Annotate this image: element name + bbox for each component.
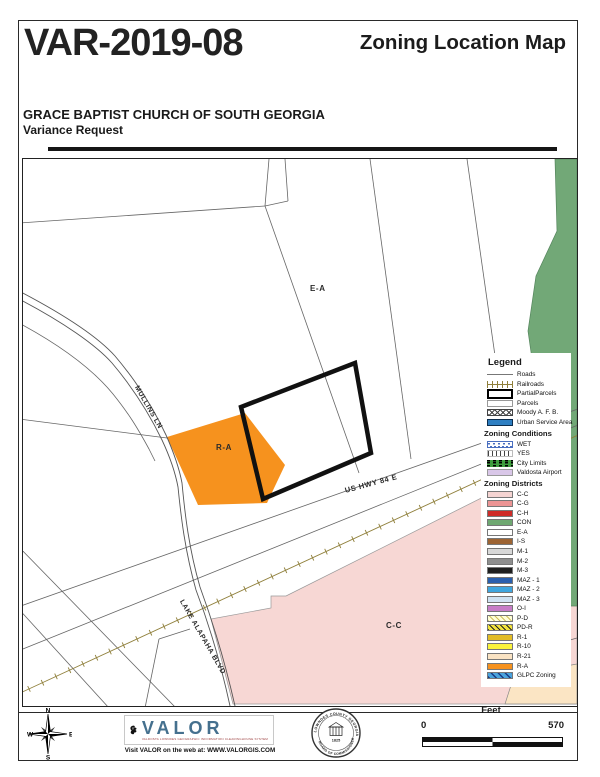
compass-east-label: E [69, 732, 72, 739]
case-number: VAR-2019-08 [24, 22, 243, 65]
legend-item: WET [481, 439, 571, 449]
legend-item: MAZ - 1 [481, 575, 571, 585]
legend-item: YES [481, 449, 571, 459]
legend-symbol-p-d [487, 615, 513, 622]
legend-item: I-S [481, 537, 571, 547]
map-label-e-a: E-A [310, 284, 326, 293]
legend-symbol-e-a [487, 529, 513, 536]
legend-symbol-maz-3 [487, 596, 513, 603]
valor-tagline: VALDOSTA LOWNDES GEOGRAPHIC INFORMATION … [142, 737, 268, 741]
map-label-c-c: C-C [386, 621, 402, 630]
legend-item: E-A [481, 528, 571, 538]
legend-item-label: MAZ - 2 [517, 586, 540, 593]
legend-symbol-railroads [487, 381, 513, 388]
legend-sections: RoadsRailroadsPartialParcelsParcelsMoody… [481, 370, 571, 680]
legend-item-label: City Limits [517, 460, 546, 467]
legend-item-label: P-D [517, 615, 528, 622]
legend-symbol-r-1 [487, 634, 513, 641]
valor-logo: VALOR VALDOSTA LOWNDES GEOGRAPHIC INFORM… [124, 715, 274, 745]
legend-item: GLPC Zoning [481, 671, 571, 681]
legend-item: MAZ - 3 [481, 594, 571, 604]
legend-item: M-2 [481, 556, 571, 566]
legend-item-label: MAZ - 1 [517, 577, 540, 584]
legend-item-label: Parcels [517, 400, 538, 407]
legend-item: O-I [481, 604, 571, 614]
legend-symbol-r-10 [487, 643, 513, 650]
page-title: Zoning Location Map [300, 31, 566, 55]
request-type: Variance Request [23, 123, 123, 137]
legend-item: City Limits [481, 458, 571, 468]
legend-symbol-c-g [487, 500, 513, 507]
legend-symbol-roads [487, 374, 513, 375]
legend-symbol-maz-1 [487, 577, 513, 584]
legend-item: R-A [481, 661, 571, 671]
map-label-r-a: R-A [216, 443, 232, 452]
scale-unit-label: Feet [430, 705, 552, 716]
legend-symbol-wet [487, 441, 513, 448]
legend-item: CON [481, 518, 571, 528]
valor-glyph-icon [130, 718, 138, 742]
legend-item-label: Moody A. F. B. [517, 409, 558, 416]
scale-bar [422, 737, 563, 747]
legend-symbol-partialparcels [487, 389, 513, 399]
legend-item-label: M-2 [517, 558, 528, 565]
zoning-map: E-AR-AC-CR-21US HWY 84 EMULLINS LNLAKE A… [22, 158, 578, 707]
legend-item: C-G [481, 499, 571, 509]
legend-symbol-c-c [487, 491, 513, 498]
legend-item: MAZ - 2 [481, 585, 571, 595]
compass-north-label: N [46, 708, 51, 715]
legend-item-label: Urban Service Area [517, 419, 572, 426]
legend-item-label: PD-R [517, 624, 533, 631]
legend-item: Urban Service Area [481, 418, 571, 428]
valor-text-block: VALOR VALDOSTA LOWNDES GEOGRAPHIC INFORM… [142, 720, 268, 741]
header-rule [48, 147, 557, 151]
legend-item-label: E-A [517, 529, 528, 536]
applicant-name: GRACE BAPTIST CHURCH OF SOUTH GEORGIA [23, 107, 325, 122]
legend-item: R-21 [481, 652, 571, 662]
county-seal-icon: LOWNDES COUNTY GEORGIA BOARD OF COMMISSI… [310, 707, 362, 759]
scale-start-value: 0 [421, 720, 426, 731]
compass-south-label: S [46, 755, 51, 762]
legend-symbol-c-h [487, 510, 513, 517]
legend-symbol-m-3 [487, 567, 513, 574]
legend-item: PD-R [481, 623, 571, 633]
legend-item: Parcels [481, 399, 571, 409]
legend-symbol-maz-2 [487, 586, 513, 593]
compass-rose: N S E W [26, 707, 72, 761]
legend-item-label: M-3 [517, 567, 528, 574]
legend-symbol-yes [487, 450, 513, 457]
legend-section-heading: Zoning Conditions [481, 427, 571, 439]
scale-end-value: 570 [540, 720, 564, 731]
legend-symbol-glpc-zoning [487, 672, 513, 679]
legend-item-label: WET [517, 441, 531, 448]
legend-item-label: PartialParcels [517, 390, 556, 397]
legend-symbol-r-a [487, 663, 513, 670]
legend-symbol-city-limits [487, 460, 513, 467]
legend-item: P-D [481, 614, 571, 624]
legend-symbol-o-i [487, 605, 513, 612]
legend-item: Railroads [481, 380, 571, 390]
legend-item-label: R-21 [517, 653, 531, 660]
legend-item-label: Roads [517, 371, 535, 378]
legend-symbol-valdosta-airport [487, 469, 513, 476]
legend-symbol-parcels [487, 400, 513, 407]
map-label-lake-alapaha-blvd: LAKE ALAPAHA BLVD [178, 599, 226, 676]
legend-item: R-1 [481, 633, 571, 643]
legend-item-label: C-C [517, 491, 528, 498]
legend-item: M-3 [481, 566, 571, 576]
legend-symbol-m-2 [487, 558, 513, 565]
map-label-us-hwy-84-e: US HWY 84 E [344, 472, 398, 495]
legend-symbol-moody-a-f-b- [487, 409, 513, 416]
legend-item-label: R-A [517, 663, 528, 670]
legend-item-label: M-1 [517, 548, 528, 555]
legend-item: PartialParcels [481, 389, 571, 399]
legend-item: Roads [481, 370, 571, 380]
legend-item-label: Valdosta Airport [517, 469, 562, 476]
legend-item-label: R-1 [517, 634, 527, 641]
legend-symbol-i-s [487, 538, 513, 545]
legend-panel: Legend RoadsRailroadsPartialParcelsParce… [481, 353, 571, 687]
legend-item-label: GLPC Zoning [517, 672, 556, 679]
legend-item: Valdosta Airport [481, 468, 571, 478]
valor-wordmark: VALOR [142, 720, 268, 737]
legend-title: Legend [481, 353, 571, 370]
legend-item: C-H [481, 509, 571, 519]
legend-symbol-m-1 [487, 548, 513, 555]
legend-item: R-10 [481, 642, 571, 652]
legend-symbol-con [487, 519, 513, 526]
legend-item-label: MAZ - 3 [517, 596, 540, 603]
legend-section-heading: Zoning Districts [481, 477, 571, 489]
valor-website: Visit VALOR on the web at: WWW.VALORGIS.… [116, 747, 284, 754]
legend-item: Moody A. F. B. [481, 408, 571, 418]
legend-item-label: I-S [517, 538, 525, 545]
legend-symbol-pd-r [487, 624, 513, 631]
compass-west-label: W [27, 732, 34, 739]
legend-item-label: O-I [517, 605, 526, 612]
legend-item-label: CON [517, 519, 531, 526]
map-label-mullins-ln: MULLINS LN [133, 385, 163, 430]
seal-year: 1825 [332, 739, 340, 743]
legend-item-label: R-10 [517, 643, 531, 650]
legend-item-label: C-G [517, 500, 529, 507]
legend-symbol-r-21 [487, 653, 513, 660]
legend-item: M-1 [481, 547, 571, 557]
legend-item-label: C-H [517, 510, 528, 517]
legend-item: C-C [481, 489, 571, 499]
legend-item-label: Railroads [517, 381, 544, 388]
legend-item-label: YES [517, 450, 530, 457]
legend-symbol-urban-service-area [487, 419, 513, 426]
